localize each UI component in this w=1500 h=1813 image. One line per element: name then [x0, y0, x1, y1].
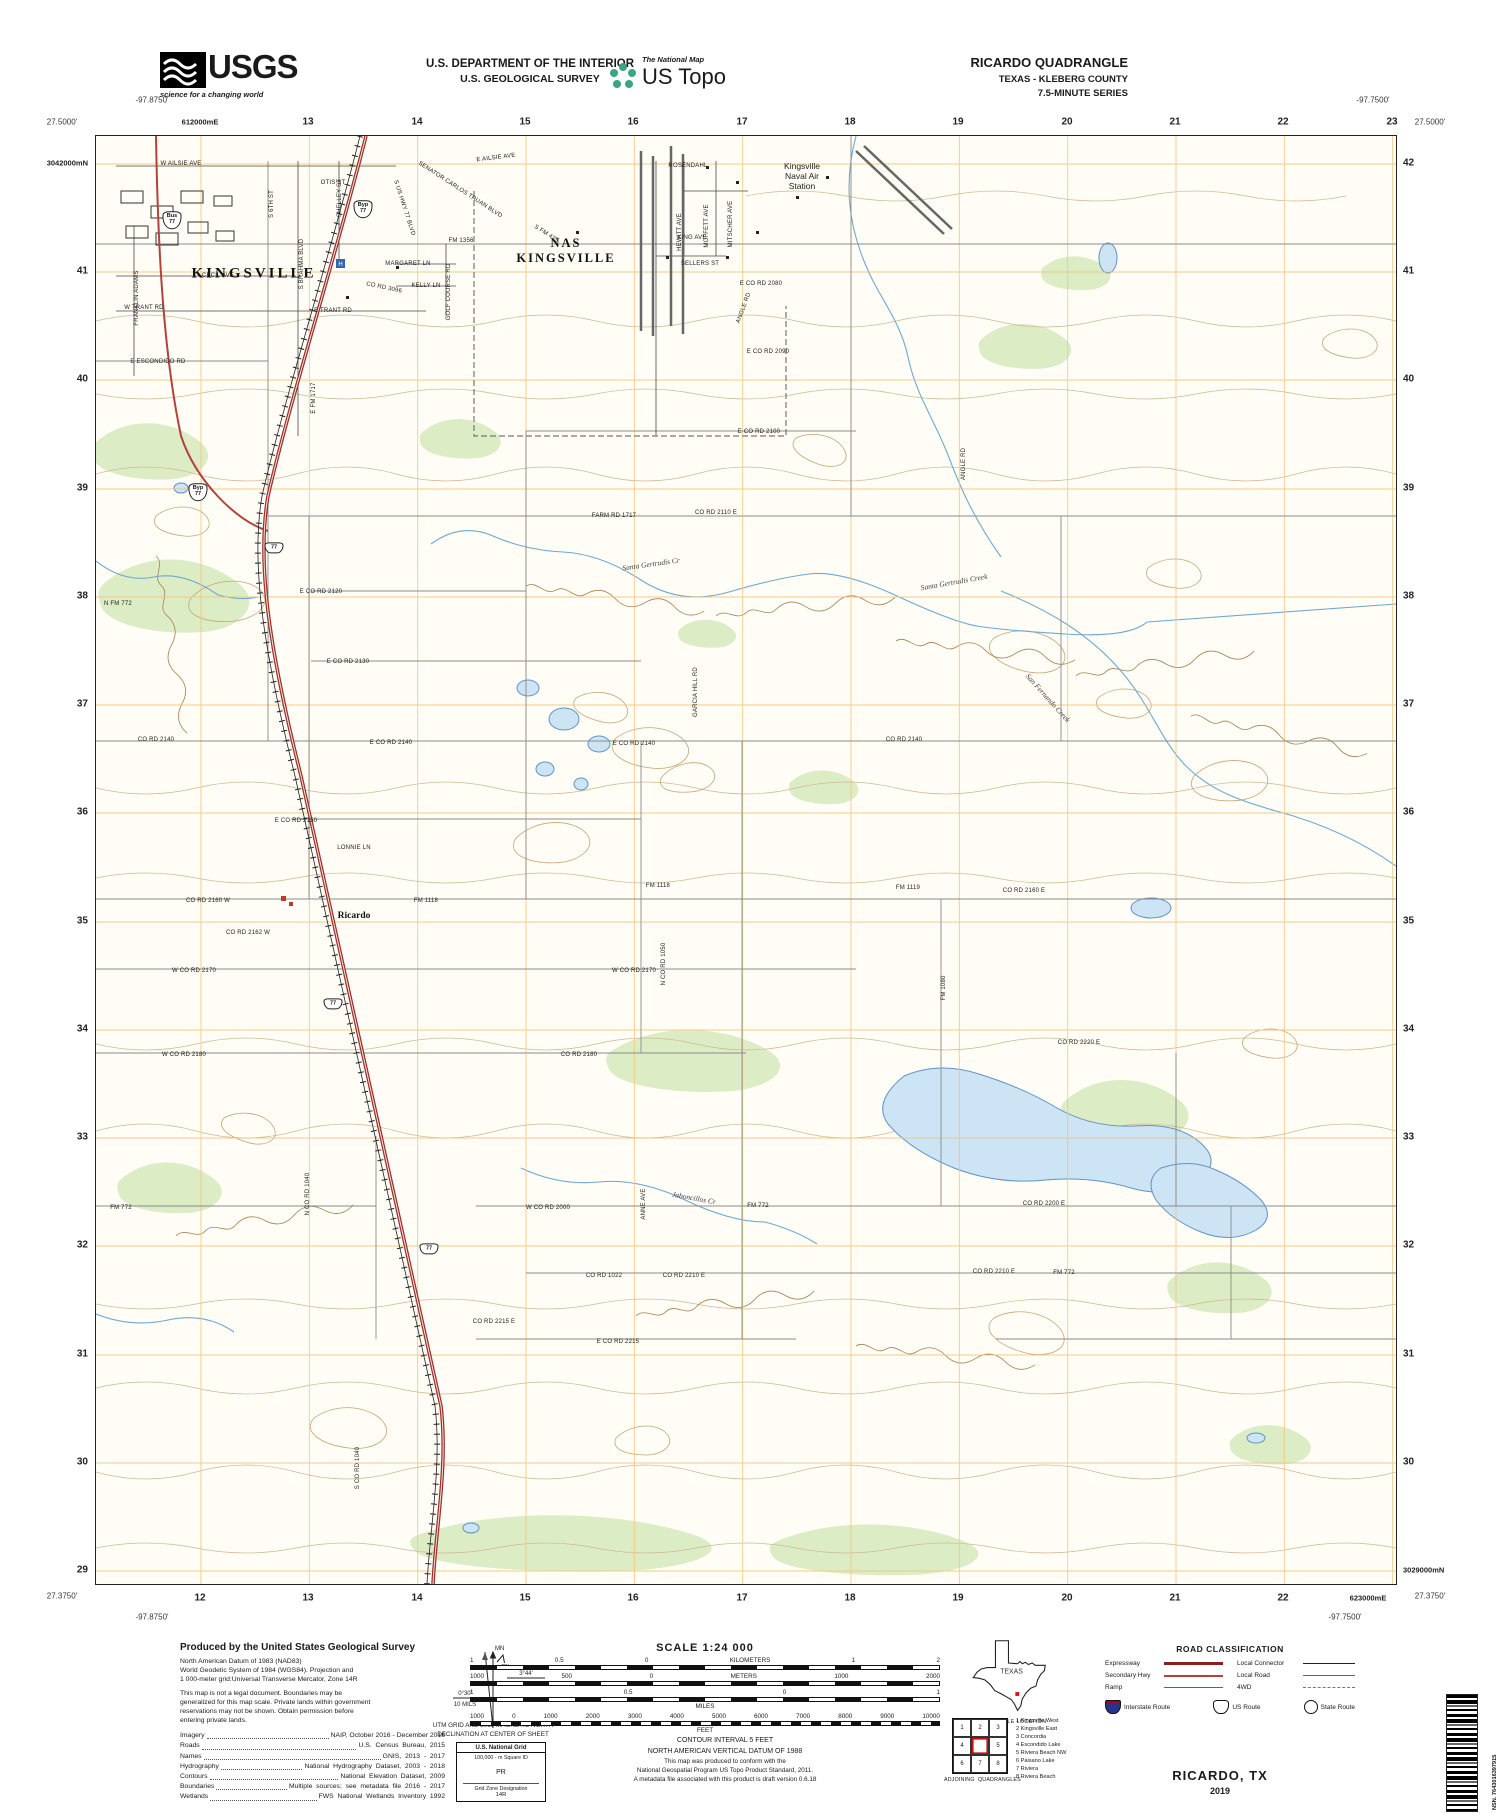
road-label: N CO RD 1050 — [661, 943, 667, 986]
adjoining-caption: ADJOINING QUADRANGLES — [944, 1777, 1014, 1783]
grid-label: 42 — [1403, 158, 1414, 169]
scale-tick: 0.5 — [555, 1657, 564, 1664]
scale-tick: 500 — [562, 1673, 573, 1680]
credits-heading: Produced by the United States Geological… — [180, 1642, 445, 1653]
usgs-wordmark: USGS — [208, 52, 298, 82]
usng-zone: 14R — [457, 1792, 545, 1801]
data-source-row: Wetlands FWS National Wetlands Inventory… — [180, 1792, 445, 1802]
grid-label: 39 — [1403, 483, 1414, 494]
grid-label: 34 — [77, 1024, 88, 1035]
road-class-row: Ramp — [1105, 1684, 1223, 1691]
corner-coordinate: -97.7500' — [1328, 1613, 1361, 1622]
road-label: CO RD 2200 E — [1023, 1201, 1065, 1207]
adjoining-name: 7 Riviera — [1016, 1766, 1066, 1774]
grid-label: 35 — [1403, 916, 1414, 927]
state-route-circle-icon — [1304, 1700, 1318, 1714]
grid-label: 12 — [194, 1593, 205, 1604]
road-label: CO RD 2160 W — [186, 898, 230, 904]
road-label: E FM 1717 — [311, 382, 317, 413]
road-label: E CO RD 2090 — [747, 349, 789, 355]
dot-leader — [216, 1789, 287, 1790]
road-label: CECIL AVE — [202, 273, 234, 279]
road-label: E ESCONDIDO RD — [130, 359, 185, 365]
lake-east — [1151, 1163, 1267, 1237]
scale-block: SCALE 1:24 000 10.50KILOMETERS12 1000500… — [470, 1642, 940, 1734]
adjoining-name: 5 Riviera Beach NW — [1016, 1750, 1066, 1758]
scale-tick: 0 — [645, 1657, 649, 1664]
road-label: W CO RD 2170 — [612, 968, 656, 974]
adjoining-cell: 6 — [953, 1755, 971, 1773]
road-label: E CO RD 2140 — [613, 741, 655, 747]
adjoining-cell: 8 — [989, 1755, 1007, 1773]
scale-tick: 2000 — [926, 1673, 940, 1680]
grid-label: 13 — [302, 117, 313, 128]
dot-leader — [221, 1769, 303, 1770]
road-label: FM 1080 — [941, 975, 947, 1000]
contour-lines — [96, 191, 1396, 1553]
data-source-row: Names GNIS, 2013 - 2017 — [180, 1752, 445, 1762]
road-label: W CO RD 2180 — [162, 1052, 206, 1058]
grid-label: 23 — [1386, 117, 1397, 128]
grid-label: 3042000mN — [47, 159, 88, 168]
grid-label: 40 — [1403, 374, 1414, 385]
road-label: FRANKLIN ADAMS — [134, 270, 140, 325]
scale-tick: METERS — [731, 1673, 757, 1680]
road-classification: ROAD CLASSIFICATION Expressway Secondary… — [1105, 1644, 1355, 1714]
dot-leader — [202, 1749, 357, 1750]
road-label: E CO RD 2215 — [597, 1339, 639, 1345]
road-label: E CO RD 2150 — [275, 818, 317, 824]
corner-coordinate: 27.3750' — [1415, 1592, 1445, 1601]
m-bar — [470, 1681, 940, 1686]
grid-label: 14 — [411, 117, 422, 128]
adjoining-name: 8 Riviera Beach — [1016, 1774, 1066, 1782]
road-label: FM 772 — [747, 1203, 769, 1209]
grid-label: 17 — [736, 1593, 747, 1604]
grid-label: 22 — [1277, 1593, 1288, 1604]
adjoining-cell — [971, 1737, 989, 1755]
grid-label: 13 — [302, 1593, 313, 1604]
national-map-icon — [608, 62, 638, 92]
us-route-legend: US Route — [1213, 1700, 1260, 1714]
grid-label: 34 — [1403, 1024, 1414, 1035]
usgs-tagline: science for a changing world — [160, 90, 263, 99]
grid-label: 16 — [627, 117, 638, 128]
usng-square-id: PR — [457, 1762, 545, 1783]
road-label: FM 1356 — [448, 238, 473, 244]
corner-coordinate: -97.7500' — [1356, 96, 1389, 105]
ft-labels: 1000010002000300040005000600070008000900… — [470, 1713, 940, 1720]
road-label: ANNE AVE — [641, 1188, 647, 1219]
road-label: CO RD 2180 — [561, 1052, 597, 1058]
ft-bar — [470, 1721, 940, 1726]
road-label: N FM 772 — [104, 601, 132, 607]
svg-text:H: H — [338, 262, 342, 268]
usng-subtitle: 100,000 - m Square ID — [457, 1753, 545, 1762]
road-classification-title: ROAD CLASSIFICATION — [1105, 1644, 1355, 1654]
dot-leader — [204, 1759, 381, 1760]
road-label: FM 1119 — [896, 885, 920, 891]
scale-tick: 2000 — [586, 1713, 600, 1720]
route-shield: 77 — [324, 998, 343, 1009]
grid-label: 31 — [77, 1349, 88, 1360]
data-source-row: Contours National Elevation Dataset, 200… — [180, 1772, 445, 1782]
scale-tick: 0 — [512, 1713, 516, 1720]
quad-state-county: TEXAS - KLEBERG COUNTY — [828, 74, 1128, 85]
grid-label: 41 — [1403, 266, 1414, 277]
road-class-row: 4WD — [1237, 1684, 1355, 1691]
road-label: MITSCHER AVE — [728, 201, 734, 248]
grid-label: 14 — [411, 1593, 422, 1604]
grid-label: 22 — [1277, 117, 1288, 128]
grid-label: 19 — [952, 1593, 963, 1604]
adjoining-name: 6 Paisano Lake — [1016, 1758, 1066, 1766]
sheet-name: RICARDO, TX — [1120, 1768, 1320, 1783]
scale-tick: 1 — [936, 1689, 940, 1696]
grid-label: 16 — [627, 1593, 638, 1604]
grid-label: 32 — [1403, 1240, 1414, 1251]
road-label: W AILSIE AVE — [161, 161, 202, 167]
adjoining-name: 2 Kingsville East — [1016, 1726, 1066, 1734]
road-class-row: Expressway — [1105, 1660, 1223, 1667]
scale-tick: 1 — [470, 1657, 474, 1664]
grid-label: 38 — [1403, 591, 1414, 602]
grid-label: 32 — [77, 1240, 88, 1251]
road-label: CO RD 2220 E — [1058, 1040, 1100, 1046]
grid-label: 18 — [844, 117, 855, 128]
quad-name: RICARDO QUADRANGLE — [828, 55, 1128, 70]
adjoining-cell: 3 — [989, 1719, 1007, 1737]
m-labels: 10005000METERS10002000 — [470, 1673, 940, 1680]
nsn-number: NSN. 7643016397915 — [1491, 1727, 1500, 1810]
road-label: W TRANT RD — [124, 305, 163, 311]
grid-label: 18 — [844, 1593, 855, 1604]
interstate-shield-icon — [1105, 1700, 1121, 1714]
grid-label: 37 — [1403, 699, 1414, 710]
route-shield: 77 — [265, 542, 284, 553]
scale-tick: 1000 — [470, 1713, 484, 1720]
adjoining-quadrangles: 12345678 ADJOINING QUADRANGLES — [952, 1718, 1014, 1783]
quad-series: 7.5-MINUTE SERIES — [828, 88, 1128, 99]
road-label: GOLF COURSE RD — [446, 264, 452, 321]
contour-interval-note: CONTOUR INTERVAL 5 FEET NORTH AMERICAN V… — [555, 1736, 895, 1757]
road-label: ROSENDAHL — [668, 163, 707, 169]
grid-label: 15 — [519, 117, 530, 128]
km-bar — [470, 1665, 940, 1670]
mi-bar — [470, 1697, 940, 1702]
dot-leader — [210, 1800, 316, 1801]
grid-label: 19 — [952, 117, 963, 128]
data-source-row: Hydrography National Hydrography Dataset… — [180, 1762, 445, 1772]
scale-tick: 1 — [852, 1657, 856, 1664]
mi-labels: 10.501 — [470, 1689, 940, 1696]
texas-outline: TEXAS — [962, 1640, 1058, 1712]
scale-tick: 1000 — [544, 1713, 558, 1720]
grid-label: 33 — [77, 1132, 88, 1143]
ricardo-buildings — [281, 896, 293, 906]
scale-tick: 5000 — [712, 1713, 726, 1720]
corner-coordinate: -97.8750' — [135, 96, 168, 105]
road-label: S BRAHMA BLVD — [299, 239, 305, 290]
road-class-sample-line — [1164, 1675, 1223, 1677]
dot-leader — [207, 1738, 329, 1739]
road-class-sample-line — [1164, 1662, 1223, 1665]
road-label: W CO RD 2000 — [526, 1205, 570, 1211]
grid-label: 36 — [77, 807, 88, 818]
scale-tick: 0 — [783, 1689, 787, 1696]
road-class-sample-line — [1164, 1687, 1223, 1688]
scale-tick: 1000 — [834, 1673, 848, 1680]
scale-tick: 2 — [936, 1657, 940, 1664]
road-label: E CO RD 2130 — [327, 659, 369, 665]
grid-label: 36 — [1403, 807, 1414, 818]
km-labels: 10.50KILOMETERS12 — [470, 1657, 940, 1664]
road-label: N CO RD 1040 — [305, 1173, 311, 1216]
road-label: MARGARET LN — [385, 261, 430, 267]
adjoining-name: 1 Kingsville West — [1016, 1718, 1066, 1726]
scale-tick: 0.5 — [624, 1689, 633, 1696]
us-route-shield-icon — [1213, 1700, 1229, 1714]
us-77 — [264, 136, 443, 1584]
road-label: CO RD 2162 W — [226, 930, 270, 936]
road-class-sample-line — [1303, 1687, 1355, 1688]
data-source-row: Roads U.S. Census Bureau, 2015 — [180, 1741, 445, 1751]
road-label: FM 772 — [1053, 1270, 1075, 1276]
scale-tick: 8000 — [838, 1713, 852, 1720]
route-shield: 77 — [420, 1243, 439, 1254]
road-label: ANGLE RD — [961, 448, 967, 480]
road-class-sample-line — [1303, 1663, 1355, 1664]
road-label: E CO RD 2140 — [370, 740, 412, 746]
adjoining-names: 1 Kingsville West2 Kingsville East3 Conc… — [1016, 1718, 1066, 1782]
building-dots — [346, 166, 829, 299]
road-label: FM 1118 — [646, 883, 670, 889]
town-label: NAS KINGSVILLE — [516, 236, 615, 266]
road-label: CO RD 2215 E — [473, 1319, 515, 1325]
corner-coordinate: 27.5000' — [1415, 118, 1445, 127]
dot-leader — [210, 1779, 339, 1780]
credits-datum: North American Datum of 1983 (NAD83) Wor… — [180, 1657, 445, 1685]
scale-tick: 0 — [650, 1673, 654, 1680]
national-map-label: The National Map — [642, 55, 726, 64]
quadrangle-title: RICARDO QUADRANGLE TEXAS - KLEBERG COUNT… — [828, 55, 1128, 99]
road-label: SHELLEY ST — [337, 179, 343, 217]
grid-label: 30 — [1403, 1457, 1414, 1468]
corner-coordinate: 27.3750' — [47, 1592, 77, 1601]
adjoining-cell: 5 — [989, 1737, 1007, 1755]
road-label: E CO RD 2100 — [738, 429, 780, 435]
grid-label: 17 — [736, 117, 747, 128]
road-class-row: Secondary Hwy — [1105, 1672, 1223, 1679]
usng-box: U.S. National Grid 100,000 - m Square ID… — [456, 1742, 546, 1802]
grid-label: 37 — [77, 699, 88, 710]
grid-label: 39 — [77, 483, 88, 494]
road-label: E TRANT RD — [314, 308, 352, 314]
scale-tick: 9000 — [880, 1713, 894, 1720]
state-route-legend: State Route — [1304, 1700, 1355, 1714]
adjoining-cell: 7 — [971, 1755, 989, 1773]
usgs-wave-icon — [160, 52, 206, 88]
railroad — [258, 136, 437, 1584]
grid-label: 15 — [519, 1593, 530, 1604]
road-label: CO RD 2210 E — [973, 1269, 1015, 1275]
road-label: W CO RD 2170 — [172, 968, 216, 974]
grid-label: 40 — [77, 374, 88, 385]
corner-coordinate: -97.8750' — [135, 1613, 168, 1622]
road-label: GARCIA HILL RD — [693, 667, 699, 717]
grid-label: 35 — [77, 916, 88, 927]
grid-label: 29 — [77, 1565, 88, 1576]
adjoining-cell: 4 — [953, 1737, 971, 1755]
road-label: CO RD 2110 E — [695, 510, 737, 516]
ustopo-label: US Topo — [642, 64, 726, 90]
road-label: E CO RD 2120 — [300, 589, 342, 595]
road-class-row: Local Road — [1237, 1672, 1355, 1679]
grid-label: 3029000mN — [1403, 1566, 1444, 1575]
sheet-year: 2019 — [1120, 1786, 1320, 1796]
road-label: FM 772 — [110, 1205, 132, 1211]
town-label: Ricardo — [338, 911, 371, 921]
usng-gz-label: Grid Zone Designation — [463, 1783, 539, 1792]
miles-unit: MILES — [470, 1703, 940, 1710]
grid-label: 41 — [77, 266, 88, 277]
adjoining-name: 3 Concordia — [1016, 1734, 1066, 1742]
adjoining-cell: 2 — [971, 1719, 989, 1737]
road-label: LONNIE LN — [337, 845, 370, 851]
interstate-route-legend: Interstate Route — [1105, 1700, 1170, 1714]
scale-tick: 1000 — [470, 1673, 484, 1680]
grid-label: 38 — [77, 591, 88, 602]
road-label: MOFFETT AVE — [704, 204, 710, 247]
road-class-row: Local Connector — [1237, 1660, 1355, 1667]
grid-label: 33 — [1403, 1132, 1414, 1143]
data-source-row: Boundaries Multiple sources; see metadat… — [180, 1782, 445, 1792]
town-label: Kingsville Naval Air Station — [784, 161, 820, 191]
grid-label: 612000mE — [182, 118, 219, 127]
data-sources: Imagery NAIP, October 2016 - December 20… — [180, 1731, 445, 1802]
road-label: SELLERS ST — [681, 261, 719, 267]
road-class-sample-line — [1303, 1675, 1355, 1676]
usgs-topo-sheet: USGS science for a changing world U.S. D… — [0, 0, 1500, 1813]
usgs-logo: USGS — [160, 52, 298, 88]
corner-coordinate: 27.5000' — [47, 118, 77, 127]
map-area: H KINGSVILLENAS KINGSVILLEKingsville Nav… — [95, 135, 1397, 1585]
scale-tick: 7000 — [796, 1713, 810, 1720]
road-label: E CO RD 2080 — [740, 281, 782, 287]
ustopo-logo: The National Map US Topo — [608, 52, 726, 92]
scale-tick: 1 — [470, 1689, 474, 1696]
adjoining-cell: 1 — [953, 1719, 971, 1737]
grid-label: 20 — [1061, 117, 1072, 128]
state-locator: TEXAS QUADRANGLE LOCATION — [955, 1640, 1065, 1725]
grid-label: 21 — [1169, 1593, 1180, 1604]
valley-contours — [150, 555, 1368, 1371]
scale-tick: 10000 — [922, 1713, 940, 1720]
barcode-text: NSN. 7643016397915 NGA REF NO. USGSX24K3… — [1472, 1727, 1500, 1810]
credits-disclaimer: This map is not a legal document. Bounda… — [180, 1689, 445, 1726]
road-label: CO RD 2140 — [886, 737, 922, 743]
road-label: S 6TH ST — [269, 190, 275, 218]
hydrography — [96, 136, 1396, 1533]
sheet-title: RICARDO, TX 2019 — [1120, 1768, 1320, 1796]
road-label: CO RD 2210 E — [663, 1273, 705, 1279]
scale-title: SCALE 1:24 000 — [470, 1642, 940, 1654]
grid-label: 31 — [1403, 1349, 1414, 1360]
road-label: CO RD 1022 — [586, 1273, 622, 1279]
road-label: HEWITT AVE — [677, 213, 683, 251]
feet-unit: FEET — [470, 1727, 940, 1734]
road-label: FARM RD 1717 — [592, 513, 636, 519]
scale-tick: 3000 — [628, 1713, 642, 1720]
texas-label: TEXAS — [1000, 1669, 1023, 1676]
road-label: CO RD 2160 E — [1003, 888, 1045, 894]
conformance-note: This map was produced to conform with th… — [555, 1757, 895, 1784]
grid-label: 20 — [1061, 1593, 1072, 1604]
scale-tick: 6000 — [754, 1713, 768, 1720]
grid-label: 30 — [77, 1457, 88, 1468]
road-label: KELLY LN — [411, 283, 440, 289]
scale-tick: 4000 — [670, 1713, 684, 1720]
scale-tick: KILOMETERS — [730, 1657, 771, 1664]
quad-location-marker — [1015, 1692, 1019, 1696]
adjoining-name: 4 Escondido Lake — [1016, 1742, 1066, 1750]
road-label: CO RD 2140 — [138, 737, 174, 743]
grid-label: 21 — [1169, 117, 1180, 128]
hospital-icon: H — [336, 259, 345, 268]
grid-label: 623000mE — [1350, 1594, 1387, 1603]
usng-title: U.S. National Grid — [457, 1743, 545, 1753]
road-label: FM 1118 — [414, 898, 438, 904]
road-label: S CO RD 1040 — [355, 1447, 361, 1489]
